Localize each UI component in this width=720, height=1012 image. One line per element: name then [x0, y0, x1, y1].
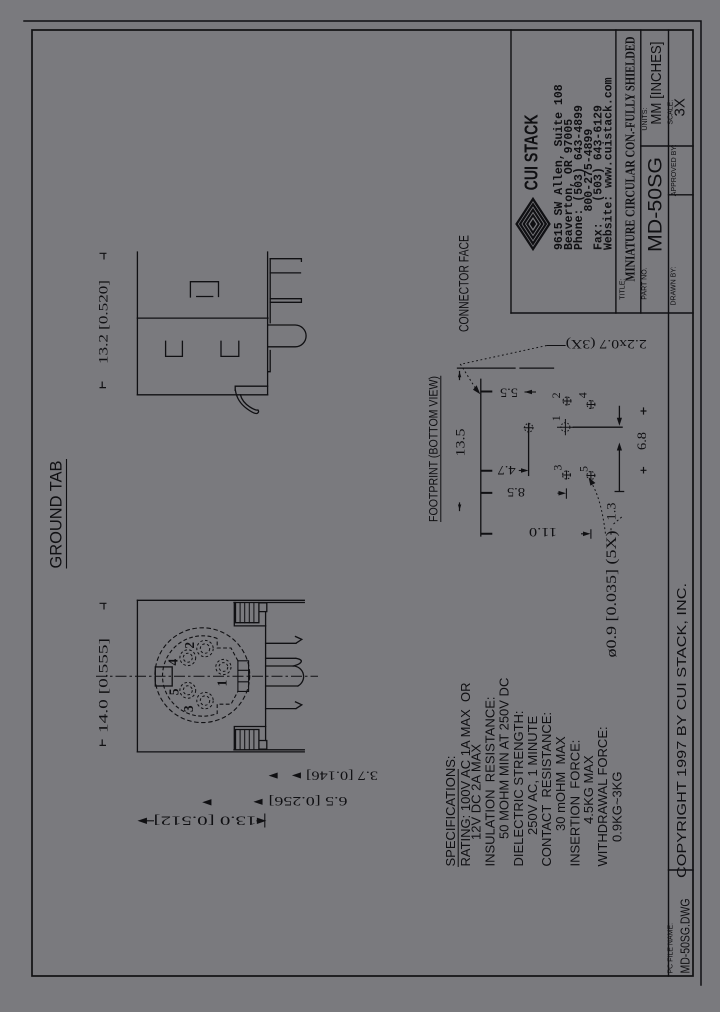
- svg-text:12V DC 2A MAX: 12V DC 2A MAX: [468, 744, 483, 840]
- svg-text:MD-50SG: MD-50SG: [646, 157, 667, 252]
- svg-text:8.5: 8.5: [507, 485, 525, 499]
- svg-text:MD-50SG.DWG: MD-50SG.DWG: [678, 899, 693, 974]
- svg-text:3: 3: [181, 705, 196, 712]
- svg-text:4.7: 4.7: [498, 463, 516, 477]
- svg-text:3: 3: [551, 465, 565, 471]
- svg-text:6.8: 6.8: [635, 432, 649, 450]
- svg-text:CONTACT RESISTANCE:: CONTACT RESISTANCE:: [539, 712, 554, 867]
- svg-text:1: 1: [215, 680, 230, 687]
- svg-text:0.9KG~3KG: 0.9KG~3KG: [609, 772, 624, 842]
- svg-text:3.7 [0.146]: 3.7 [0.146]: [306, 769, 378, 784]
- svg-text:COPYRIGHT 1997 BY CUI STACK, I: COPYRIGHT 1997 BY CUI STACK, INC.: [674, 583, 689, 878]
- svg-text:MM [INCHES]: MM [INCHES]: [648, 42, 665, 125]
- svg-text:50 MOHM MIN AT 250V DC: 50 MOHM MIN AT 250V DC: [497, 678, 512, 839]
- svg-text:4: 4: [575, 392, 589, 398]
- svg-text:5: 5: [166, 688, 181, 695]
- svg-text:WITHDRAWAL FORCE:: WITHDRAWAL FORCE:: [595, 726, 610, 866]
- svg-text:30 mOHM MAX: 30 mOHM MAX: [553, 736, 568, 831]
- svg-text:5.5: 5.5: [500, 385, 518, 399]
- svg-text:1.3: 1.3: [605, 503, 619, 521]
- svg-text:11.0: 11.0: [529, 525, 557, 539]
- svg-text:2: 2: [182, 642, 197, 649]
- svg-text:250V AC, 1 MINUTE: 250V AC, 1 MINUTE: [525, 715, 540, 835]
- svg-text:ø0.9 [0.035] (5X): ø0.9 [0.035] (5X): [604, 530, 620, 657]
- svg-text:13.5: 13.5: [453, 429, 467, 457]
- svg-text:FOOTPRINT (BOTTOM VIEW): FOOTPRINT (BOTTOM VIEW): [428, 376, 440, 522]
- svg-text:3X: 3X: [672, 98, 689, 116]
- svg-text:14.0 [0.555]: 14.0 [0.555]: [96, 638, 111, 733]
- svg-text:2: 2: [549, 392, 563, 398]
- svg-text:APPROVED BY:: APPROVED BY:: [671, 144, 678, 196]
- svg-text:5: 5: [576, 466, 590, 472]
- svg-text:Website: www.cuistack.com: Website: www.cuistack.com: [602, 77, 615, 250]
- svg-text:4.5KG MAX: 4.5KG MAX: [581, 755, 596, 824]
- svg-text:13.2 [0.520]: 13.2 [0.520]: [96, 280, 111, 364]
- svg-text:DRAWN BY:: DRAWN BY:: [671, 266, 678, 305]
- svg-text:GROUND TAB: GROUND TAB: [48, 461, 66, 569]
- svg-text:PART NO.: PART NO.: [642, 267, 649, 299]
- svg-text:SPECIFICATIONS:: SPECIFICATIONS:: [443, 756, 458, 867]
- svg-text:CONNECTOR FACE: CONNECTOR FACE: [456, 235, 471, 332]
- svg-text:MINIATURE CIRCULAR CON.-FULLY: MINIATURE CIRCULAR CON.-FULLY SHIELDED: [623, 36, 638, 281]
- svg-text:1: 1: [549, 415, 563, 421]
- svg-text:CUI STACK: CUI STACK: [520, 114, 541, 190]
- svg-text:6.5 [0.256]: 6.5 [0.256]: [269, 794, 348, 809]
- svg-text:4: 4: [166, 659, 181, 666]
- svg-text:2.2x0.7 (3X): 2.2x0.7 (3X): [566, 337, 647, 352]
- svg-text:INSULATION RESISTANCE:: INSULATION RESISTANCE:: [482, 697, 497, 867]
- svg-text:PC FILE NAME:: PC FILE NAME:: [668, 923, 675, 974]
- svg-text:DIELECTRIC STRENGTH:: DIELECTRIC STRENGTH:: [511, 710, 526, 866]
- svg-text:13.0 [0.512]: 13.0 [0.512]: [154, 813, 257, 828]
